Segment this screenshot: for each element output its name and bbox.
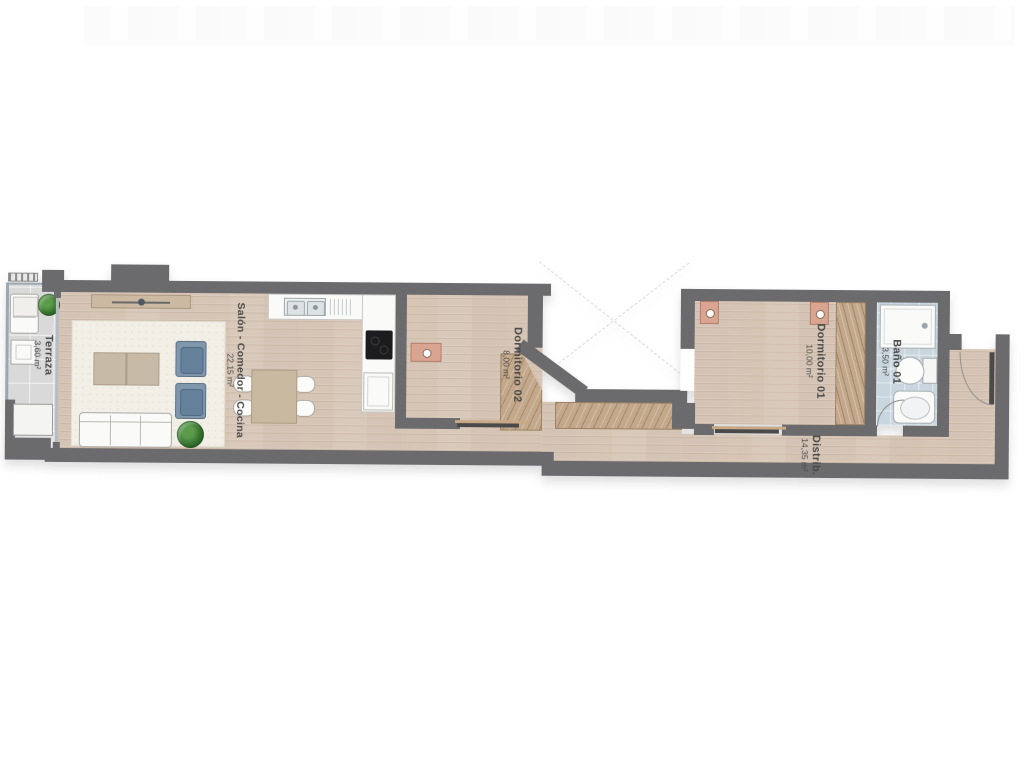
- wall: [865, 302, 877, 425]
- sideboard-tv: [91, 294, 191, 309]
- nightstand: [410, 343, 441, 362]
- wall: [395, 295, 407, 428]
- room-area: 14,35 m²: [799, 438, 809, 472]
- armchair: [175, 341, 206, 377]
- wall: [672, 403, 695, 429]
- coffee-table: [126, 352, 159, 385]
- room-area: 22,15 m²: [224, 353, 234, 387]
- wall: [937, 303, 950, 426]
- wall: [865, 425, 877, 436]
- wall: [782, 425, 875, 437]
- room-area: 8,00 m²: [501, 350, 511, 379]
- dorm01-wardrobe: [835, 302, 866, 425]
- sink-drainer: [330, 299, 354, 315]
- oven-appliance: [363, 372, 393, 410]
- wall: [45, 448, 550, 466]
- dining-table: [251, 369, 297, 423]
- armchair: [175, 383, 206, 419]
- apartment-plan: Terraza 3,60 m² Salón - Comedor - Cocina…: [4, 252, 1020, 502]
- room-label-distrib: Distrib. 14,35 m²: [799, 367, 823, 543]
- floor-plan-image: Terraza 3,60 m² Salón - Comedor - Cocina…: [0, 0, 1024, 768]
- wall: [681, 289, 695, 349]
- room-area: 3,60 m²: [32, 341, 42, 370]
- room-label-bano: Baño 01 3,50 m²: [880, 274, 904, 450]
- living-plant: [177, 421, 204, 448]
- wall: [575, 389, 687, 403]
- room-name: Baño 01: [890, 339, 903, 384]
- room-name: Distrib.: [809, 435, 822, 475]
- wall: [528, 284, 544, 348]
- wall: [903, 426, 949, 437]
- sofa: [79, 412, 172, 448]
- wall-protrusion: [111, 264, 169, 282]
- room-label-terraza: Terraza 3,60 m²: [32, 267, 56, 443]
- corridor-closet: [555, 402, 682, 430]
- room-name: Terraza: [42, 335, 55, 376]
- room-name: Salón - Comedor - Cocina: [234, 302, 247, 438]
- wall: [995, 334, 1010, 476]
- room-area: 3,50 m²: [880, 347, 890, 376]
- window: [680, 349, 694, 391]
- cooktop: [365, 330, 392, 359]
- room-label-dorm02: Dormitorio 02 8,00 m²: [501, 277, 525, 453]
- wall: [395, 418, 460, 430]
- wall: [938, 334, 962, 350]
- dorm01-sliding-door: [715, 429, 779, 434]
- nightstand: [700, 301, 719, 324]
- kitchen-sink: [284, 298, 326, 316]
- room-label-salon: Salón - Comedor - Cocina 22,15 m²: [224, 282, 247, 458]
- wall: [542, 461, 1009, 480]
- coffee-table: [93, 352, 126, 385]
- watermark-band: [84, 6, 1014, 46]
- room-name: Dormitorio 02: [511, 327, 524, 403]
